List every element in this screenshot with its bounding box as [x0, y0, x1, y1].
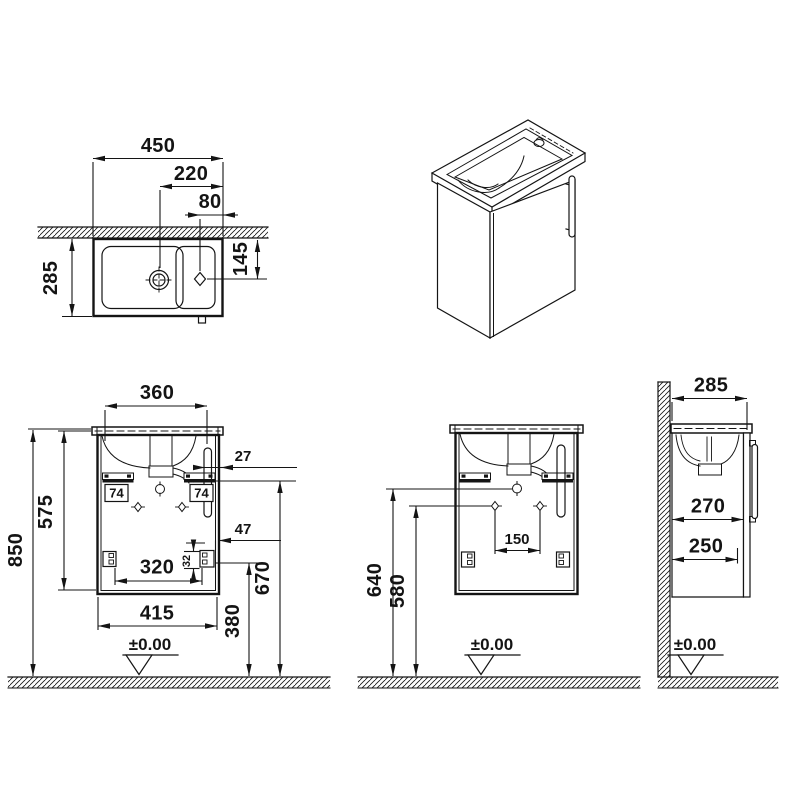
door-handle-side — [750, 441, 758, 523]
basin-profile-side — [676, 435, 739, 475]
dim-label-47: 47 — [235, 521, 252, 538]
cabinet-body-rear — [456, 433, 578, 594]
dim-label-850: 850 — [5, 533, 27, 567]
floor-level-marker-side: ±0.00 — [668, 635, 723, 675]
ground-section-front — [8, 677, 330, 688]
dim-label-74-left: 74 — [109, 486, 124, 501]
dim-overall-width: 450 — [93, 135, 223, 236]
ground-section-side — [658, 677, 778, 688]
basin-outline-top — [94, 239, 223, 316]
dim-label-380: 380 — [222, 604, 244, 638]
front-view: 74 74 — [5, 382, 330, 688]
dim-label-320: 320 — [140, 557, 174, 579]
floor-level-label-rear: ±0.00 — [471, 635, 513, 654]
corner-bracket-right-rear — [557, 552, 570, 567]
floor-level-marker-front: ±0.00 — [123, 635, 178, 675]
floor-level-marker-rear: ±0.00 — [465, 635, 520, 675]
vanity-dimension-drawing: 450 220 80 285 145 — [0, 0, 800, 800]
corner-bracket-right-front — [200, 551, 214, 568]
dim-label-670: 670 — [252, 561, 274, 595]
dim-label-80: 80 — [199, 191, 222, 213]
dim-label-270: 270 — [691, 496, 725, 518]
dim-depth: 285 — [40, 239, 92, 317]
dim-label-450: 450 — [141, 135, 175, 157]
corner-bracket-left-front — [103, 552, 116, 567]
dim-label-27: 27 — [235, 448, 252, 465]
dim-label-220: 220 — [174, 163, 208, 185]
dim-upper-fixing-height: 670 — [213, 481, 296, 676]
floor-level-label-front: ±0.00 — [129, 635, 171, 654]
dim-body-depth: 250 — [672, 536, 738, 564]
dim-overall-depth: 285 — [672, 375, 747, 431]
dim-label-32: 32 — [181, 555, 193, 567]
dim-label-580: 580 — [387, 574, 409, 608]
wall-section-side — [658, 382, 670, 677]
door-panel-side — [744, 433, 751, 597]
dim-depth-with-door: 270 — [672, 496, 744, 520]
dim-label-145: 145 — [230, 242, 252, 276]
mounting-bracket-right — [184, 473, 215, 483]
dim-cabinet-height: 575 — [35, 431, 96, 590]
cabinet-door-face — [490, 180, 575, 338]
dim-label-250: 250 — [689, 536, 723, 558]
mounting-bracket-left-rear — [460, 473, 491, 483]
front-counter-rail — [92, 427, 223, 435]
technical-drawing-page: 450 220 80 285 145 — [0, 0, 800, 800]
dim-label-360: 360 — [140, 382, 174, 404]
bracket-label-right: 74 — [190, 485, 213, 502]
dim-overall-height: 850 — [5, 429, 91, 676]
wall-section — [38, 227, 268, 238]
dim-label-150: 150 — [504, 531, 529, 548]
bracket-label-left: 74 — [105, 485, 128, 502]
perspective-view — [432, 120, 585, 338]
dim-label-575: 575 — [35, 495, 57, 529]
dim-label-640: 640 — [364, 563, 386, 597]
floor-level-label-side: ±0.00 — [674, 635, 716, 654]
mounting-bracket-left — [103, 473, 134, 483]
side-counter-rail — [671, 424, 752, 433]
top-view: 450 220 80 285 145 — [38, 135, 268, 323]
dim-cabinet-width: 415 — [98, 597, 217, 630]
side-view: 285 270 250 ±0.00 — [658, 375, 778, 689]
dim-label-74-right: 74 — [194, 486, 209, 501]
dim-corner-offset: 47 — [216, 521, 282, 550]
corner-bracket-left-rear — [462, 552, 475, 567]
cabinet-front-face — [438, 183, 491, 338]
ground-section-rear — [358, 677, 640, 688]
dim-label-285-top: 285 — [40, 261, 62, 295]
dim-label-285-side: 285 — [694, 375, 728, 397]
rear-view: 150 640 580 ±0.00 — [358, 425, 640, 688]
dim-label-415: 415 — [140, 603, 174, 625]
rear-counter-rail — [450, 425, 583, 433]
